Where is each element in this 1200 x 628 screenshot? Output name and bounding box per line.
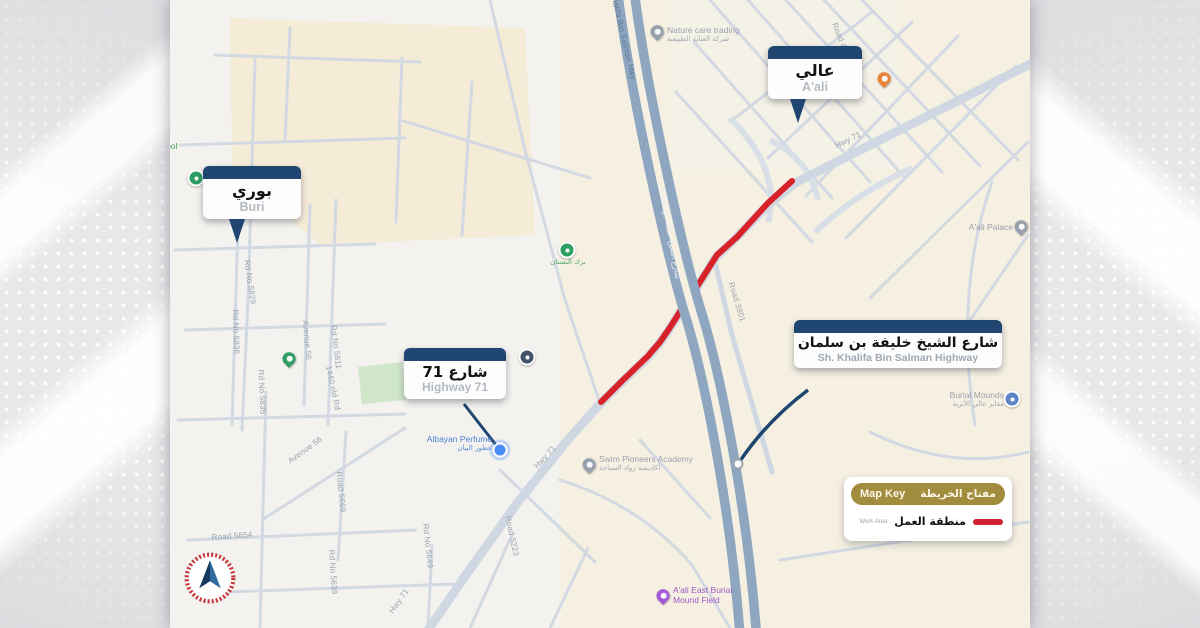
road-label: Sh Khalifa Bin Salman Hwy	[606, 0, 638, 81]
callout-khalifa-highway: شارع الشيخ خليفة بن سلمان Sh. Khalifa Bi…	[794, 320, 1002, 368]
callout-highway71-arabic: شارع 71	[404, 363, 506, 381]
callout-header-bar	[794, 320, 1002, 333]
callout-header-bar	[203, 166, 301, 179]
callout-header-bar	[768, 46, 862, 59]
map-key-work-area-row: Work Area منطقة العمل	[851, 515, 1005, 528]
road-label: Avenue 56	[301, 320, 313, 361]
road-label: Avenue 56	[286, 435, 324, 466]
callout-aali: عالي A'ali	[768, 46, 862, 99]
road-label: Road 5654	[211, 530, 252, 542]
decorative-border-left	[0, 0, 170, 628]
road-label: Road 5223	[503, 515, 520, 557]
map-key-header: Map Key مفتاح الخريطة	[851, 483, 1005, 505]
map-key-title-ar: مفتاح الخريطة	[920, 488, 996, 500]
road-label: 1440 old Rd	[324, 365, 342, 411]
callout-khalifa-arabic: شارع الشيخ خليفة بن سلمان	[794, 335, 1002, 352]
road-label: Rd No 5811	[329, 325, 343, 370]
callout-aali-arabic: عالي	[768, 61, 862, 80]
road-label: Rd No 5649	[421, 523, 435, 568]
callout-aali-english: A'ali	[768, 80, 862, 94]
work-area-label-en: Work Area	[859, 519, 887, 525]
road-label: Rd No 5836	[231, 310, 242, 355]
roadworks-announcement-graphic: Nature care tradingشركة العناية الطبيعية…	[0, 0, 1200, 628]
callout-pointer-triangle	[229, 219, 245, 243]
callout-pointer-triangle	[790, 99, 806, 123]
map-key-title-en: Map Key	[860, 488, 905, 500]
road-label: Rd No 5829	[242, 259, 257, 305]
decorative-border-right	[1030, 0, 1200, 628]
work-area-label-ar: منطقة العمل	[894, 515, 966, 528]
work-area-swatch	[973, 519, 1003, 525]
road-label: Hwy 71	[834, 130, 863, 151]
road-label: Hwy 71	[532, 444, 557, 471]
road-label: Road 3801	[727, 281, 748, 323]
callout-highway71-english: Highway 71	[404, 381, 506, 395]
callout-buri: بوري Buri	[203, 166, 301, 219]
callout-highway71: شارع 71 Highway 71	[404, 348, 506, 399]
callout-buri-english: Buri	[203, 200, 301, 214]
road-label: شارع الشيخ خليفة بن سلمان	[657, 184, 682, 279]
road-label: Rd No 5835	[256, 369, 267, 414]
map-canvas: Nature care tradingشركة العناية الطبيعية…	[170, 0, 1030, 628]
map-key: Map Key مفتاح الخريطة Work Area منطقة ال…	[844, 477, 1012, 541]
road-label: Hwy 71	[387, 587, 410, 615]
road-label: Road 5669	[334, 471, 347, 513]
callout-header-bar	[404, 348, 506, 361]
road-label: Rd No 5639	[327, 549, 339, 594]
compass-icon	[182, 550, 238, 606]
callout-khalifa-english: Sh. Khalifa Bin Salman Highway	[794, 352, 1002, 364]
callout-buri-arabic: بوري	[203, 181, 301, 200]
